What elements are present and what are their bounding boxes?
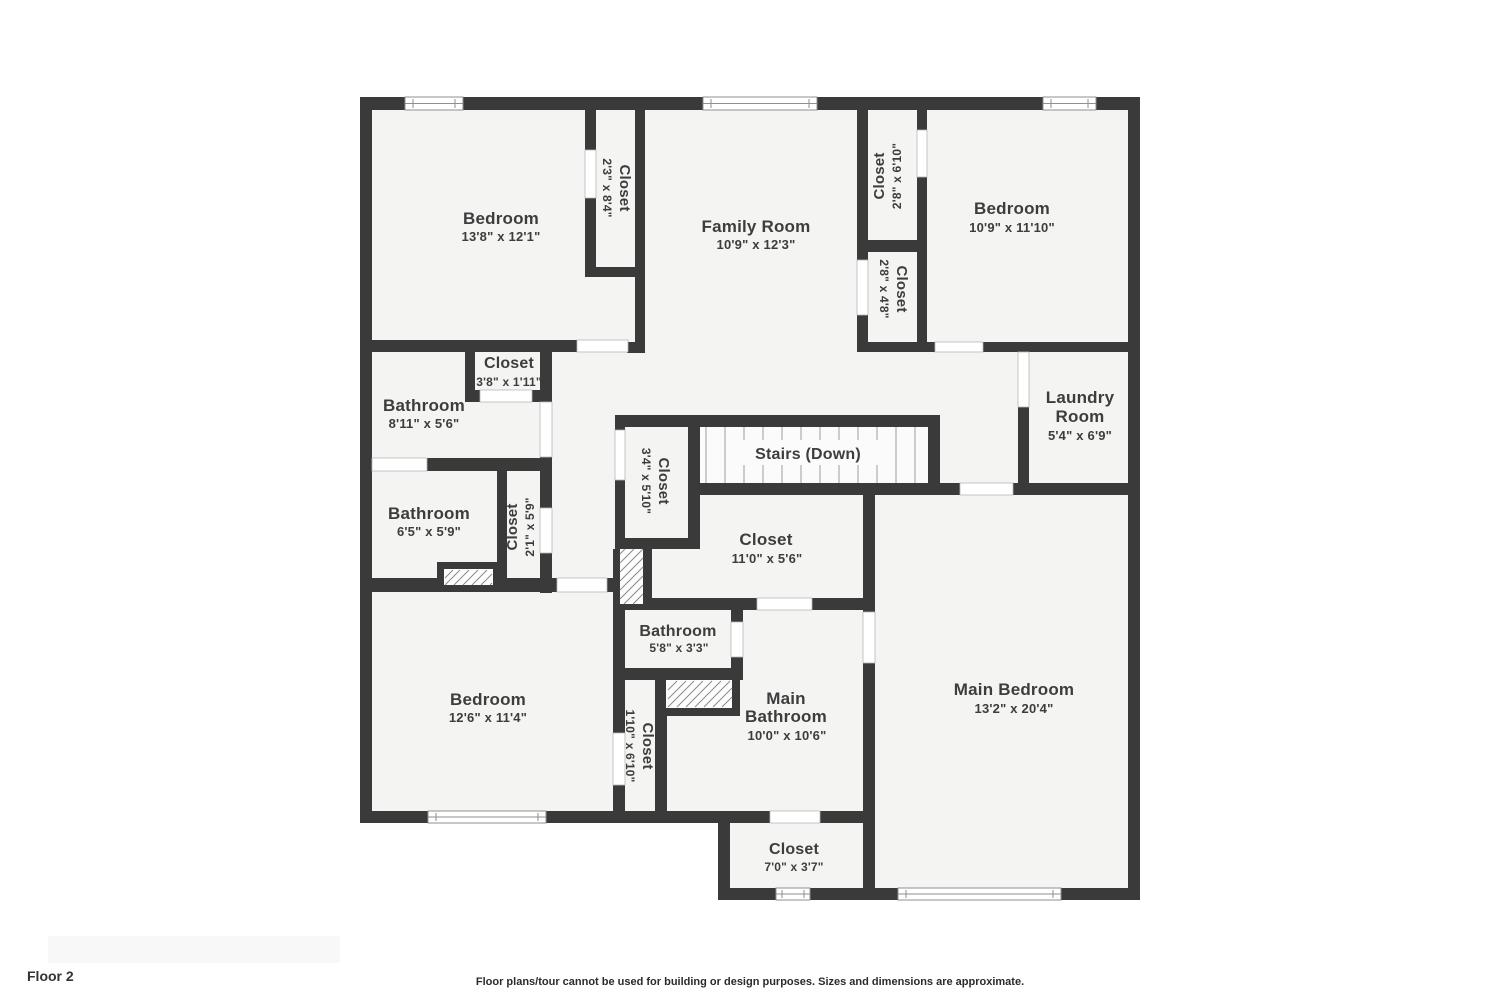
bathroom-mid-name: Bathroom: [388, 504, 470, 523]
wall-exterior-left: [360, 110, 372, 823]
bathroom-upper-name: Bathroom: [383, 396, 465, 415]
door-closet-hall: [480, 390, 532, 402]
wall-stairs-bottom: [693, 483, 960, 495]
closet-main-name: Closet: [769, 841, 820, 858]
bedroom-tl-name: Bedroom: [463, 209, 539, 228]
wall-stairs-top: [615, 415, 940, 427]
closet-stairs-label: Closet 3'4" x 5'10": [639, 448, 672, 514]
stairs-label: Stairs (Down): [755, 446, 861, 463]
wall-closets-tr-divider: [857, 240, 927, 252]
closet-tl-dims: 2'3" x 8'4": [600, 158, 614, 217]
wall-bedroom-bl-right-lower: [613, 785, 625, 823]
bathroom-mid-dims: 6'5" x 5'9": [397, 524, 461, 539]
closet-tr-lower-label: Closet 2'8" x 4'8": [877, 259, 910, 318]
wall-main-bedroom-left-upper: [863, 495, 875, 612]
bedroom-tl-dims: 13'8" x 12'1": [462, 229, 541, 244]
family-room-name: Family Room: [702, 217, 811, 236]
laundry-room-dims: 5'4" x 6'9": [1048, 428, 1112, 443]
closet-hall-dims: 3'8" x 1'11": [476, 375, 542, 389]
floor-plan-page: Bedroom 13'8" x 12'1" Closet 2'3" x 8'4"…: [0, 0, 1500, 1000]
main-bathroom-name-line1: Main: [766, 689, 806, 708]
closet-center-name: Closet: [739, 530, 792, 549]
main-bedroom-name: Main Bedroom: [954, 680, 1074, 699]
door-bathroom-upper: [540, 402, 552, 457]
door-closet-mid: [540, 508, 552, 553]
wall-closet-stairs-right: [688, 427, 700, 549]
closet-tl-label: Closet 2'3" x 8'4": [600, 158, 633, 217]
closet-hall-name: Closet: [484, 355, 535, 372]
family-room-dims: 10'9" x 12'3": [717, 237, 796, 252]
wall-family-room-left: [635, 110, 645, 353]
closet-mid-name: Closet: [504, 503, 521, 550]
door-bedroom-bl: [557, 578, 607, 592]
door-laundry: [1018, 352, 1029, 407]
closet-tr-upper-dims: 2'8" x 6'10": [890, 143, 904, 209]
closet-main-dims: 7'0" x 3'7": [764, 860, 823, 874]
closet-tr-upper-label: Closet 2'8" x 6'10": [871, 143, 904, 209]
door-closet-main: [770, 811, 820, 823]
door-main-bathroom-to-bedroom: [863, 612, 875, 663]
wall-closet-tl-bottom: [585, 267, 645, 277]
wall-closet-stairs-bottom: [615, 538, 700, 549]
wall-closet-tr-lower-right: [917, 252, 927, 342]
floor-plan-canvas: Bedroom 13'8" x 12'1" Closet 2'3" x 8'4"…: [0, 0, 1500, 1000]
bathroom-upper-dims: 8'11" x 5'6": [389, 416, 460, 431]
door-bedroom-tl: [577, 340, 628, 352]
main-bathroom-dims: 10'0" x 10'6": [748, 728, 827, 743]
closet-bl-name: Closet: [639, 722, 656, 769]
wall-laundry-left: [1018, 407, 1029, 483]
wall-main-bedroom-left-lower: [863, 663, 875, 900]
closet-tr-upper-name: Closet: [871, 152, 888, 199]
door-closet-stairs: [615, 430, 625, 480]
wall-closet-tr-lower-bottom: [857, 342, 935, 352]
wall-family-room-right: [857, 110, 868, 352]
closet-stairs-dims: 3'4" x 5'10": [639, 448, 653, 514]
door-main-bedroom: [960, 483, 1013, 495]
bedroom-tr-dims: 10'9" x 11'10": [969, 220, 1055, 235]
closet-tl-name: Closet: [616, 164, 633, 211]
door-bathrooms-divider: [372, 458, 427, 471]
door-closet-tl: [585, 150, 596, 198]
door-bathroom-small: [731, 622, 743, 657]
closet-mid-label: Closet 2'1" x 5'9": [504, 497, 537, 556]
closet-tr-lower-dims: 2'8" x 4'8": [877, 259, 891, 318]
wall-bedroom-tr-bottom: [983, 342, 1140, 352]
bedroom-tr-name: Bedroom: [974, 199, 1050, 218]
closet-tr-lower-name: Closet: [893, 265, 910, 312]
disclaimer-text: Floor plans/tour cannot be used for buil…: [476, 976, 1024, 988]
closet-center-dims: 11'0" x 5'6": [732, 551, 803, 566]
main-bathroom-name-line2: Bathroom: [745, 707, 827, 726]
laundry-room-name-line2: Room: [1056, 407, 1105, 426]
floor-label: Floor 2: [27, 968, 74, 984]
watermark-placeholder: [48, 936, 340, 963]
door-closet-tr-upper: [917, 130, 927, 177]
closet-bl-dims: 1'10" x 6'10": [623, 709, 637, 782]
wall-exterior-right: [1128, 110, 1140, 900]
bedroom-bl-name: Bedroom: [450, 690, 526, 709]
wall-family-room-left-foot: [627, 342, 645, 353]
main-bedroom-dims: 13'2" x 20'4": [975, 701, 1054, 716]
bathroom-small-dims: 5'8" x 3'3": [649, 641, 708, 655]
laundry-room-name-line1: Laundry: [1046, 388, 1115, 407]
closet-mid-dims: 2'1" x 5'9": [523, 497, 537, 556]
wall-laundry-bottom: [1013, 483, 1140, 495]
door-bedroom-tr: [935, 342, 983, 352]
bedroom-bl-dims: 12'6" x 11'4": [449, 710, 527, 725]
footer: Floor 2 Floor plans/tour cannot be used …: [27, 936, 1024, 988]
bathroom-small-name: Bathroom: [639, 623, 716, 640]
door-closet-center: [757, 598, 812, 610]
wall-closet-main-left: [718, 811, 730, 900]
door-closet-tr-lower: [857, 260, 868, 315]
closet-stairs-name: Closet: [655, 457, 672, 504]
